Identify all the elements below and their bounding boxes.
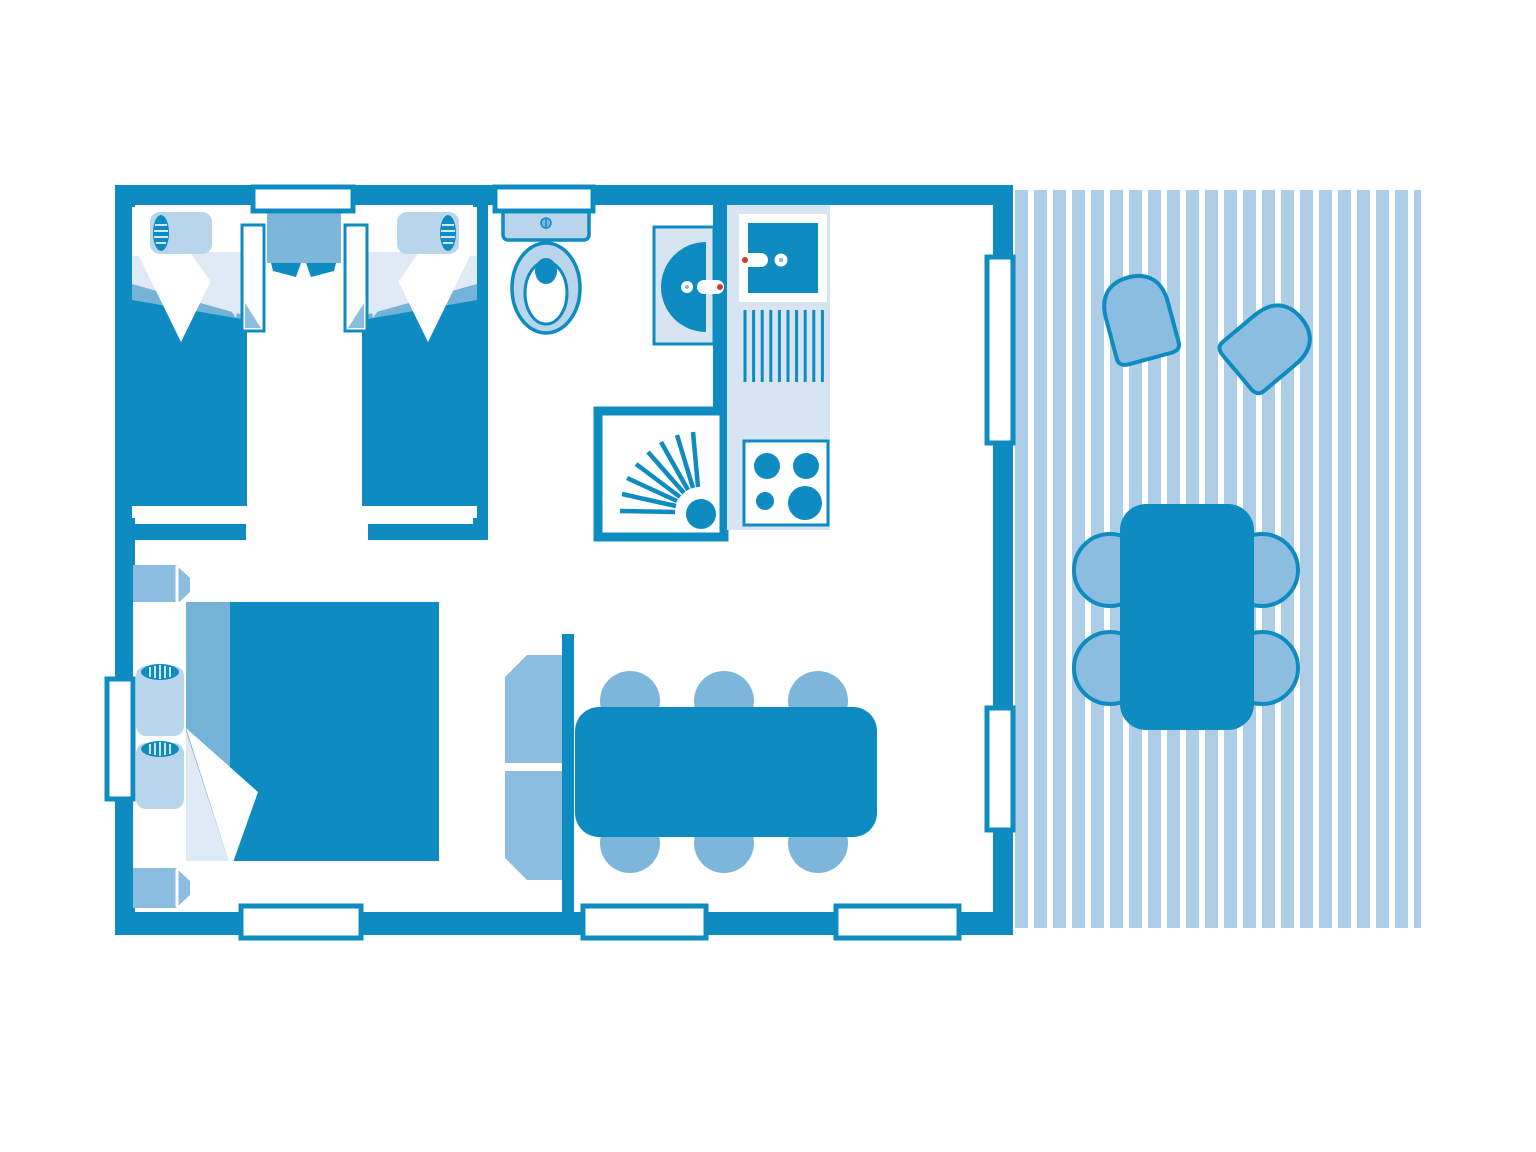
kitchen bbox=[727, 205, 830, 530]
burner bbox=[793, 453, 819, 479]
left-window-bedroom bbox=[107, 679, 133, 799]
wardrobe bbox=[505, 655, 562, 880]
bedroom-double bbox=[133, 565, 562, 908]
burner bbox=[754, 453, 780, 479]
bottom-window-living-2 bbox=[836, 906, 959, 938]
pillow bbox=[136, 741, 184, 809]
shower-drain bbox=[686, 499, 716, 529]
nightstand-drawer bbox=[306, 263, 336, 277]
bathroom bbox=[503, 206, 724, 537]
kitchen-sink bbox=[739, 214, 827, 302]
tap-hot-dot bbox=[742, 257, 748, 263]
floorplan-page bbox=[0, 0, 1536, 1152]
shower bbox=[598, 411, 724, 537]
right-window-terrace bbox=[987, 257, 1013, 443]
burner bbox=[756, 492, 774, 510]
nightstand-drawer bbox=[271, 263, 301, 277]
hob bbox=[744, 441, 828, 525]
floorplan-drawing bbox=[0, 0, 1536, 1152]
single-bed-right bbox=[362, 207, 477, 518]
top-window-bathroom bbox=[495, 187, 593, 211]
wall-living-bedroom bbox=[562, 634, 574, 912]
washbasin bbox=[654, 227, 724, 344]
outdoor-table bbox=[1120, 504, 1254, 730]
terrace-door bbox=[987, 708, 1013, 830]
bottom-window-bedroom bbox=[241, 906, 361, 938]
double-bed bbox=[133, 602, 439, 868]
side-unit-left bbox=[242, 225, 264, 331]
nightstand bbox=[267, 205, 341, 263]
living-dining bbox=[575, 671, 877, 873]
single-bed-left bbox=[132, 207, 247, 518]
tap-hot-dot bbox=[717, 284, 723, 290]
top-window-bedroom bbox=[253, 187, 353, 211]
toilet bbox=[503, 206, 589, 333]
wall-bedrooms-divider-left bbox=[135, 524, 246, 540]
burner bbox=[788, 486, 822, 520]
dining-table bbox=[575, 707, 877, 837]
bedside-table-bottom bbox=[133, 868, 190, 908]
bottom-window-living bbox=[583, 906, 706, 938]
bedroom-twin bbox=[132, 205, 477, 518]
bedside-table-top bbox=[133, 565, 190, 605]
wall-bedrooms-divider-right bbox=[368, 524, 473, 540]
side-unit-right bbox=[345, 225, 367, 331]
terrace bbox=[1015, 190, 1421, 928]
pillow bbox=[136, 664, 184, 736]
